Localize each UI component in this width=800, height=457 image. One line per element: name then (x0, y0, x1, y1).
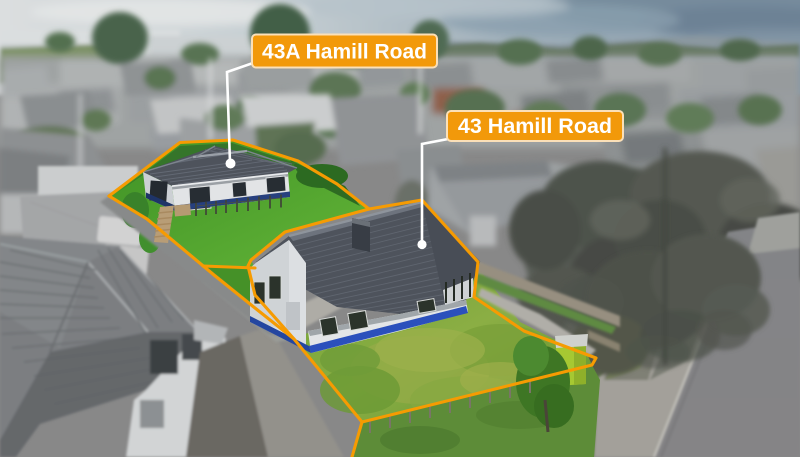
svg-text:43A Hamill Road: 43A Hamill Road (262, 41, 427, 64)
svg-text:43 Hamill Road: 43 Hamill Road (458, 114, 612, 138)
